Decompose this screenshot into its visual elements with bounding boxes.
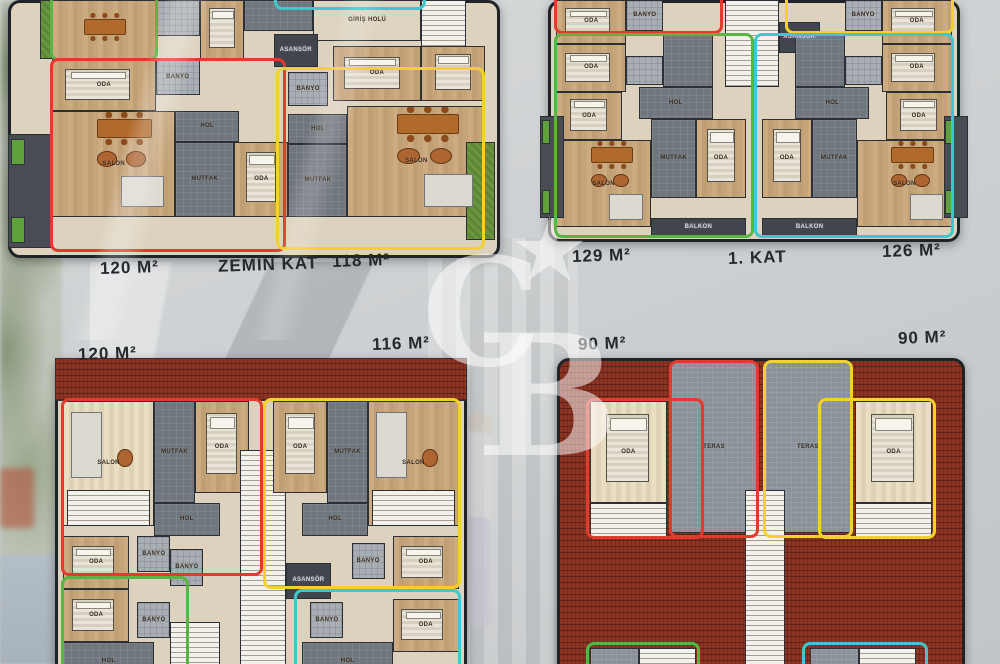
room-label: ODA [419,622,433,629]
room-label: BANYO [142,551,165,558]
room-label: HOL [200,123,214,130]
room-salon: SALON [556,140,651,227]
room-hol: HOL [639,87,713,118]
room-oda: ODA [855,401,933,503]
room-label: BANYO [142,617,165,624]
room-label: MUTFAK [305,177,332,184]
area-label-ground-left: 120 M² [100,257,160,279]
sofa-furniture [71,412,101,478]
room-label: MUTFAK [191,176,218,183]
room-label: MUTFAK [821,155,848,162]
room-asansor: ASANSÖR [274,34,318,68]
area-label-ground-right: 118 M² [332,250,391,272]
room-oda: ODA [696,119,745,199]
room-label: MUTFAK [161,449,188,456]
room-label: HOL [825,100,839,107]
room-label: SALON [893,181,916,188]
room-label: GİRİŞ HOLÜ [348,17,386,24]
room-label: BANYO [175,564,198,571]
room-mutfak: MUTFAK [154,401,195,503]
room-label: ODA [254,176,268,183]
room-label: ASANSÖR [292,577,324,584]
room-banyo: BANYO [137,536,170,572]
room-label: HOL [669,100,683,107]
room-balkon: BALKON [762,218,857,237]
sofa-furniture [424,174,472,207]
room-oda: ODA [556,0,626,44]
room-salon: SALON [52,111,175,217]
room-label: ODA [714,155,728,162]
room [372,490,454,526]
room-banyo: BANYO [170,549,203,585]
dining-table-furniture [397,114,459,133]
room-hol: HOL [795,87,869,118]
area-label-second-right: 116 M² [372,333,431,355]
floor-plans-layer: GİRİŞ HOLÜODABANYOASANSÖRODABANYOSALONHO… [0,0,1000,664]
room-banyo: BANYO [156,59,200,95]
dining-table-furniture [891,147,934,163]
room-label: ODA [584,18,598,25]
room-salon: SALON [857,140,952,227]
room [156,0,200,36]
room-hol: HOL [302,503,368,536]
room-oda: ODA [882,44,952,92]
room-oda: ODA [393,536,459,589]
room-label: ODA [582,113,596,120]
room-label: ODA [89,559,103,566]
plan-second-floor: SALONMUTFAKODAHOLODABANYOBANYOODABANYOHO… [55,358,467,664]
room [639,648,696,664]
sofa-furniture [609,194,643,220]
room-label: SALON [405,158,428,165]
room [200,0,244,59]
room-mutfak: MUTFAK [288,144,347,216]
room-label: HOL [180,516,194,523]
room-label: ODA [293,444,307,451]
plan-roof-floor: TERASODATERASODA [557,358,965,664]
area-label-first-right: 126 M² [882,240,942,262]
room-hol: HOL [302,642,393,664]
room-oda: ODA [886,92,952,140]
room [52,0,155,59]
room-oda: ODA [556,44,626,92]
room [590,648,639,664]
room-banyo: BANYO [137,602,170,638]
area-label-roof-left: 90 M² [578,333,627,355]
room [244,0,313,31]
room-label: HOL [341,658,355,664]
room-hol: HOL [63,642,154,664]
bed-furniture [209,8,234,48]
room-label: HOL [102,658,116,664]
floor-title-ground: ZEMİN KAT [218,253,319,276]
room-label: BANYO [357,558,380,565]
room-label: ODA [89,612,103,619]
room-oda: ODA [882,0,952,44]
room-label: ODA [584,64,598,71]
room-banyo: BANYO [352,543,385,579]
room-label: BANYO [633,12,656,19]
area-label-roof-right: 90 M² [898,327,947,349]
room-banyo: BANYO [845,0,882,31]
room-balkon: BALKON [651,218,746,237]
bed-furniture [435,54,471,90]
room-asansor: ASANSÖR [286,563,331,599]
room-mutfak: MUTFAK [327,401,368,503]
room [745,490,786,664]
room [170,622,219,664]
room-label: HOL [311,126,325,133]
room-label: ASANSÖR [783,34,815,41]
room [810,648,859,664]
room-oda: ODA [590,401,668,503]
room-oda: ODA [52,59,155,111]
room-label: ODA [370,70,384,77]
room [725,0,779,87]
room-label: MUTFAK [660,155,687,162]
room-mutfak: MUTFAK [175,142,234,217]
room-oda: ODA [234,142,288,217]
dining-table-furniture [97,119,152,138]
room [40,0,52,59]
room [67,490,149,526]
room-label: BANYO [852,12,875,19]
room [55,358,467,401]
room [855,503,933,539]
room-label: BANYO [166,74,189,81]
room-label: TERAS [703,444,725,451]
armchair-furniture [430,148,452,164]
room-label: ODA [621,449,635,456]
floor-title-first: 1. KAT [728,247,787,269]
room-label: SALON [103,161,126,168]
room-label: TERAS [797,444,819,451]
room-hol: HOL [175,111,239,142]
brochure-photo: GİRİŞ HOLÜODABANYOASANSÖRODABANYOSALONHO… [0,0,1000,664]
room-mutfak: MUTFAK [651,119,696,199]
room-label: ODA [910,18,924,25]
room-oda: ODA [762,119,811,199]
room [540,116,565,218]
room-label: BALKON [685,224,712,231]
room [859,648,916,664]
room-label: BANYO [315,617,338,624]
room-label: HOL [328,516,342,523]
room-oda: ODA [333,46,422,100]
room-label: ODA [780,155,794,162]
room [626,56,663,85]
room-oda: ODA [63,536,129,589]
room-oda: ODA [556,92,622,140]
armchair-furniture [914,174,930,187]
room-label: SALON [97,460,120,467]
room-banyo: BANYO [626,0,663,31]
room-banyo: BANYO [310,602,343,638]
sofa-furniture [910,194,944,220]
room-oda: ODA [273,401,327,493]
room-giris_holu: GİRİŞ HOLÜ [313,0,421,41]
room [944,116,969,218]
room-banyo: BANYO [288,72,327,106]
room-oda: ODA [63,589,129,642]
room-label: ODA [215,444,229,451]
sofa-furniture [376,412,406,478]
plan-first-floor: ASANSÖRODABANYOODAODAHOLSALONMUTFAKODABA… [548,0,960,242]
area-label-first-left: 129 M² [572,245,632,267]
room-label: ASANSÖR [280,47,312,54]
room-hol: HOL [154,503,220,536]
room [590,503,668,539]
armchair-furniture [613,174,629,187]
dining-table-furniture [591,147,634,163]
room [663,31,712,87]
room-label: SALON [402,460,425,467]
room-label: ODA [419,559,433,566]
room-label: MUTFAK [334,449,361,456]
plan-ground-floor: GİRİŞ HOLÜODABANYOASANSÖRODABANYOSALONHO… [8,0,500,258]
sofa-furniture [121,176,164,207]
room-oda: ODA [393,599,459,652]
room-label: BALKON [796,224,823,231]
room-label: ODA [97,82,111,89]
armchair-furniture [126,151,146,166]
room [845,56,882,85]
room-label: ODA [910,64,924,71]
room-mutfak: MUTFAK [812,119,857,199]
room-hol: HOL [288,114,347,145]
room-label: ODA [886,449,900,456]
dining-table-furniture [84,19,127,35]
room [421,46,485,100]
room [8,134,52,248]
room-label: ODA [912,113,926,120]
room-salon: SALON [347,106,485,217]
area-label-second-left: 120 M² [78,343,138,365]
room-label: SALON [592,181,615,188]
room-label: BANYO [297,86,320,93]
